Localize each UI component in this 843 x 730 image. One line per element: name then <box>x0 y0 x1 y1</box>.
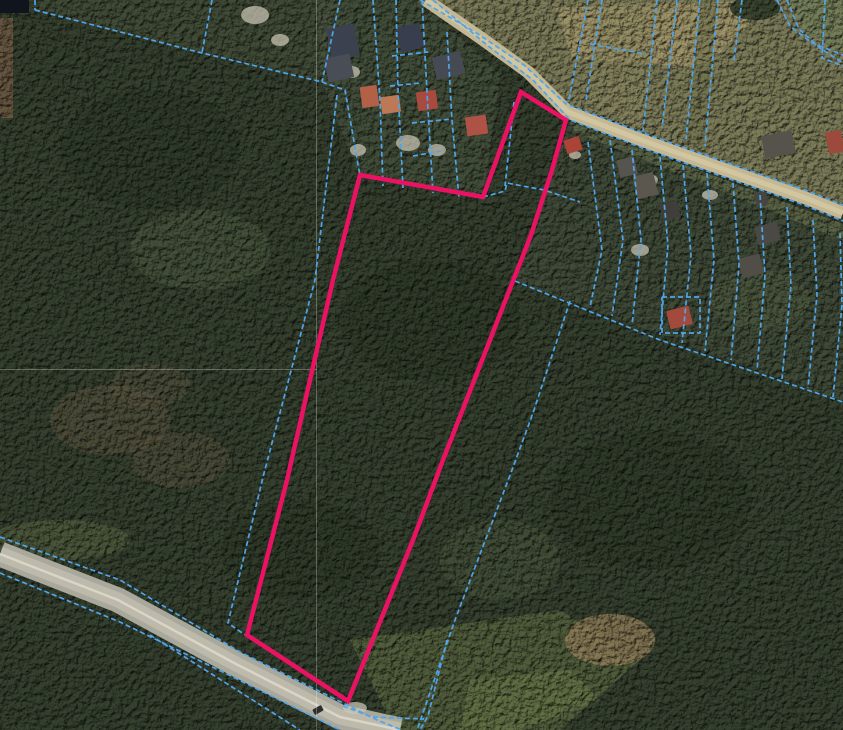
light-canopy-1 <box>130 210 270 290</box>
driveway-patch <box>350 144 366 156</box>
map-artifacts-layer <box>0 0 29 13</box>
driveway-patch <box>702 190 718 200</box>
dark-canopy-1 <box>340 260 520 380</box>
dark-canopy-4 <box>60 90 240 210</box>
light-canopy-3 <box>710 270 810 330</box>
brown-blob-2 <box>130 432 230 488</box>
clearing-tan <box>565 614 655 666</box>
building-footprint <box>360 85 380 108</box>
driveway-patch <box>271 34 289 46</box>
map-viewport[interactable] <box>0 0 843 730</box>
dark-canopy-3 <box>550 430 750 570</box>
building-footprint <box>465 115 488 137</box>
brown-left-edge <box>0 18 13 118</box>
dark-canopy-2 <box>220 500 380 600</box>
driveway-patch <box>241 6 269 24</box>
satellite-map-canvas[interactable] <box>0 0 843 730</box>
corner-artifact <box>0 0 29 13</box>
light-canopy-2 <box>440 520 560 600</box>
